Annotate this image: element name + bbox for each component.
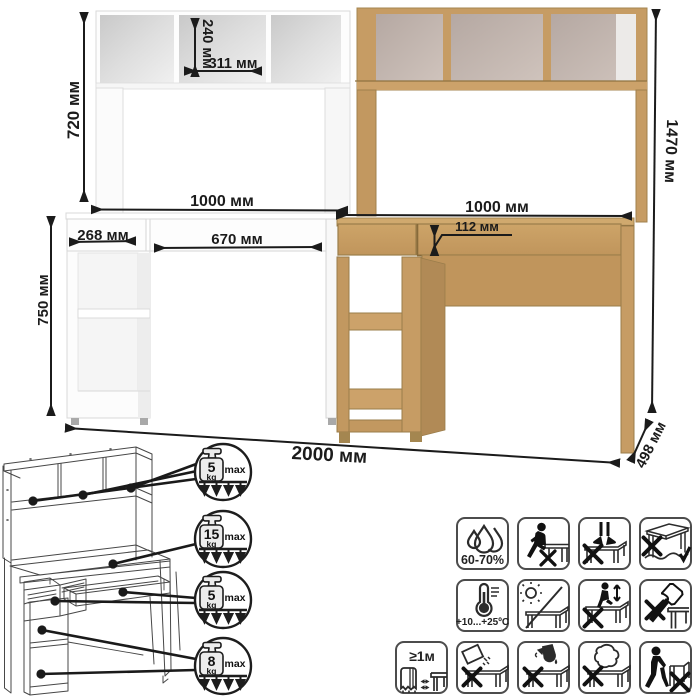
svg-text:≥1м: ≥1м [409, 648, 435, 664]
svg-text:kg: kg [207, 472, 217, 482]
svg-text:311 мм: 311 мм [209, 56, 258, 72]
svg-text:112 мм: 112 мм [455, 219, 499, 234]
svg-text:kg: kg [207, 539, 217, 549]
svg-text:+10...+25ºC: +10...+25ºC [456, 617, 509, 628]
svg-text:1470 мм: 1470 мм [661, 119, 680, 183]
svg-text:1000 мм: 1000 мм [190, 193, 254, 210]
svg-text:2000 мм: 2000 мм [291, 443, 368, 468]
svg-text:kg: kg [207, 666, 217, 676]
svg-text:720 мм: 720 мм [64, 81, 83, 139]
svg-text:60-70%: 60-70% [461, 553, 504, 567]
svg-text:750 мм: 750 мм [35, 274, 52, 325]
svg-text:670 мм: 670 мм [211, 231, 262, 248]
svg-text:kg: kg [207, 600, 217, 610]
svg-text:1000 мм: 1000 мм [465, 199, 529, 216]
svg-text:268 мм: 268 мм [77, 227, 128, 244]
